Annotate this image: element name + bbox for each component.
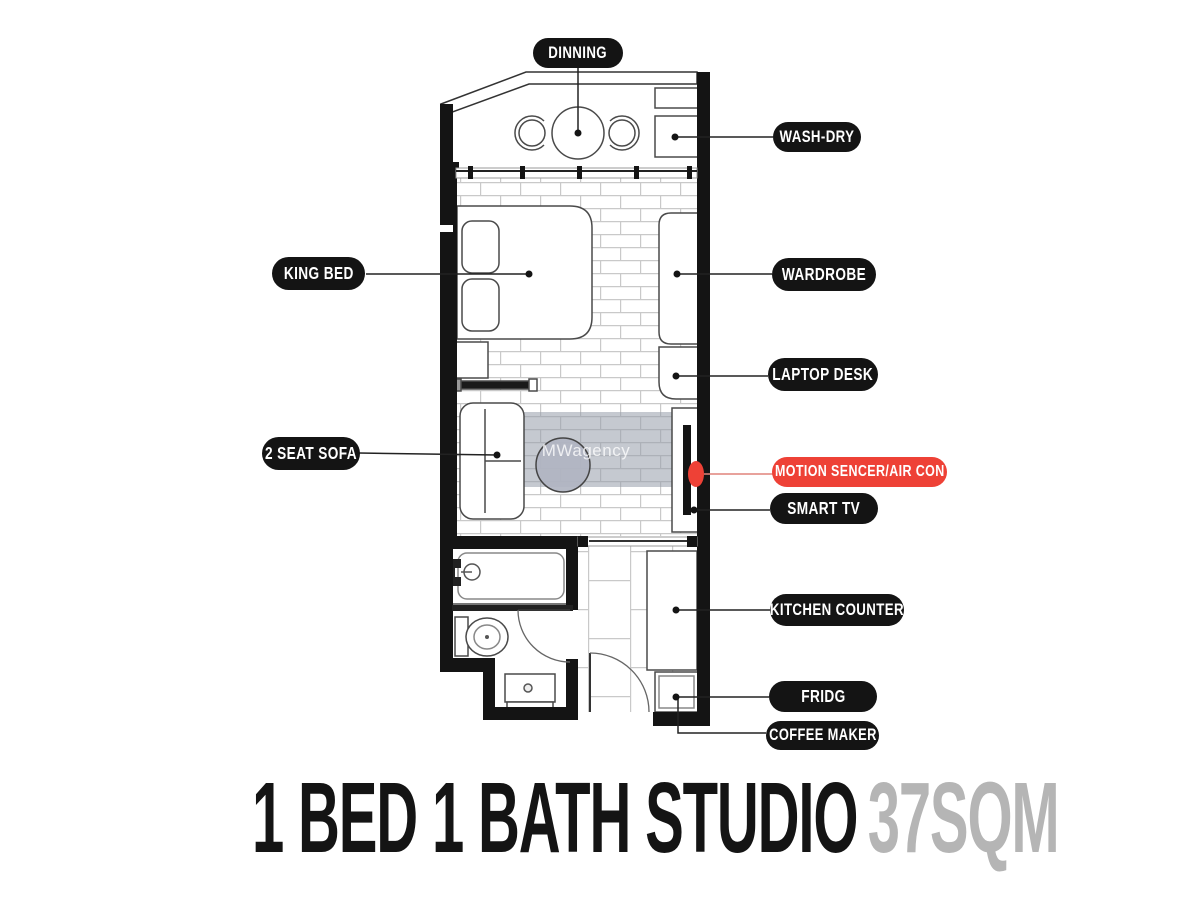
window-band	[456, 166, 697, 179]
label-coffee-maker: COFFEE MAKER	[766, 721, 879, 750]
nightstand	[456, 342, 488, 378]
label-king-bed-text: KING BED	[284, 263, 354, 284]
label-laptop-desk-text: LAPTOP DESK	[773, 364, 874, 385]
label-motion-sencer-air-con: MOTION SENCER/AIR CON	[772, 457, 947, 487]
label-laptop-desk: LAPTOP DESK	[768, 358, 878, 391]
sofa	[460, 403, 524, 519]
label-smart-tv: SMART TV	[770, 493, 878, 524]
label-smart-tv-text: SMART TV	[788, 498, 861, 519]
label-wardrobe: WARDROBE	[772, 258, 876, 291]
watermark: MWagency	[538, 441, 634, 461]
label-king-bed: KING BED	[272, 257, 365, 290]
label-dinning-text: DINNING	[549, 43, 608, 63]
label-two-seat-sofa: 2 SEAT SOFA	[262, 437, 360, 470]
toilet	[455, 617, 508, 656]
motion-sensor-dot	[688, 461, 704, 487]
floor-plan-canvas: DINNING WASH-DRY KING BED WARDROBE LAPTO…	[0, 0, 1200, 900]
bathroom-door	[518, 610, 570, 662]
label-two-seat-sofa-text: 2 SEAT SOFA	[265, 443, 357, 464]
label-wash-dry: WASH-DRY	[773, 122, 861, 152]
title-main: 1 BED 1 BATH STUDIO	[252, 762, 857, 874]
label-coffee-maker-text: COFFEE MAKER	[769, 726, 877, 745]
label-motion-sencer-text: MOTION SENCER/AIR CON	[775, 463, 945, 481]
vanity-sink	[505, 674, 555, 709]
bathtub	[447, 548, 568, 604]
laptop-desk-shape	[659, 347, 698, 399]
title-area: 37SQM	[868, 762, 1059, 874]
fridge-shape	[655, 672, 698, 712]
bench	[455, 379, 537, 391]
label-dinning: DINNING	[533, 38, 623, 68]
king-bed-shape	[457, 206, 592, 339]
label-fridg-text: FRIDG	[801, 686, 845, 707]
label-wardrobe-text: WARDROBE	[782, 264, 866, 285]
washer-dryer	[655, 88, 698, 157]
label-fridg: FRIDG	[769, 681, 877, 712]
page-title: 1 BED 1 BATH STUDIO37SQM	[252, 768, 948, 868]
label-wash-dry-text: WASH-DRY	[780, 127, 855, 147]
label-kitchen-counter: KITCHEN COUNTER	[770, 594, 904, 626]
label-kitchen-counter-text: KITCHEN COUNTER	[770, 600, 904, 620]
sliding-door	[578, 536, 697, 547]
wardrobe-shape	[659, 213, 698, 344]
